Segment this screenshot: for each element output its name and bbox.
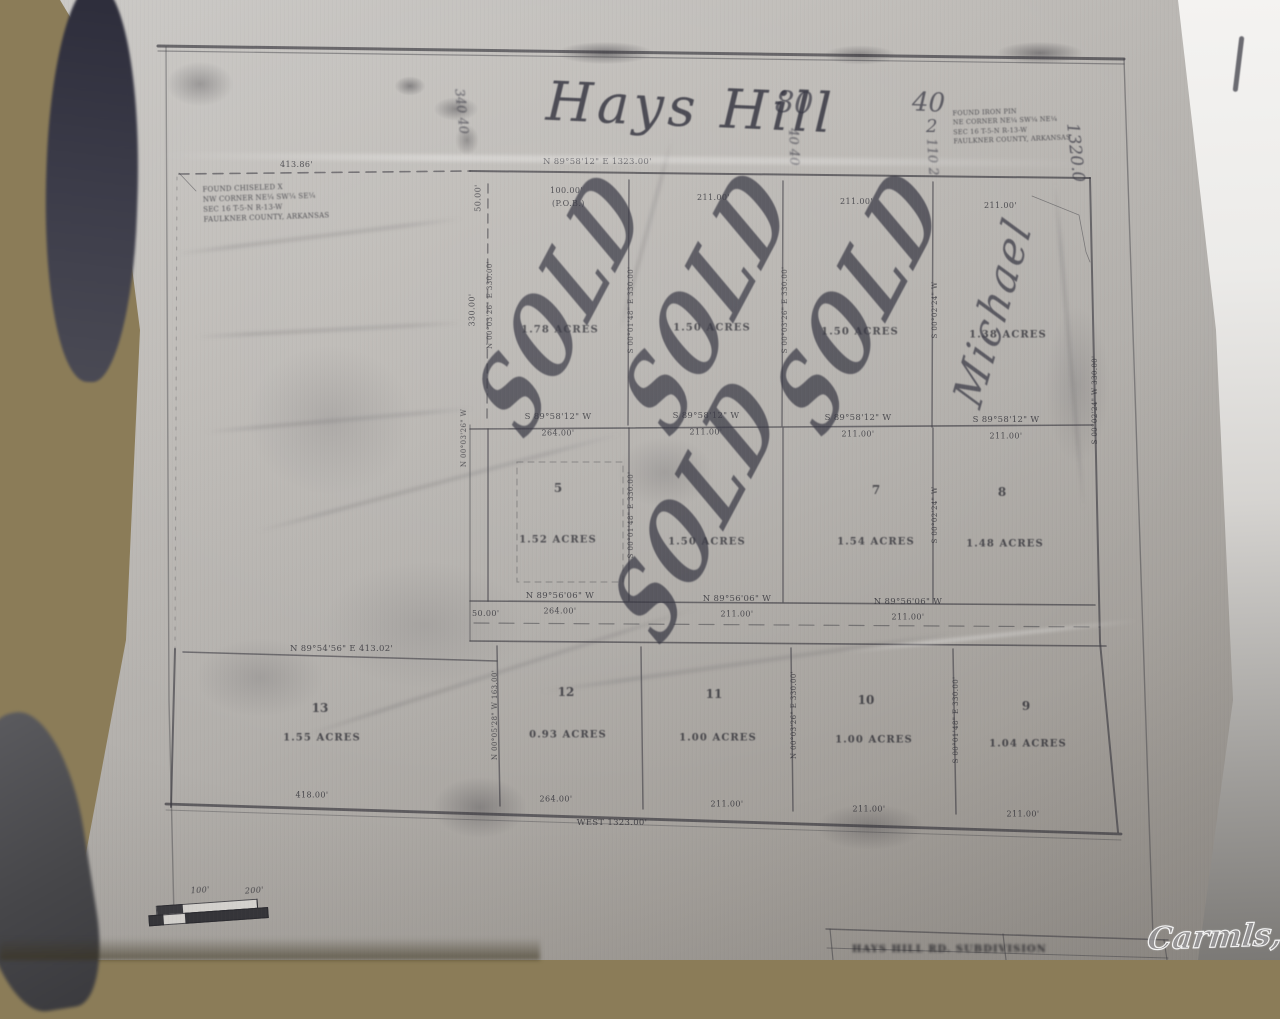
- dark-object-left-edge: [39, 0, 145, 383]
- watermark: Carmls, Inc: [1146, 915, 1280, 958]
- paper-texture: [0, 0, 1280, 960]
- paper-sheet: FOUND CHISELED X NW CORNER NE¼ SW¼ SE¼ S…: [0, 0, 1280, 960]
- photo-of-plat-map: FOUND CHISELED X NW CORNER NE¼ SW¼ SE¼ S…: [0, 0, 1280, 960]
- table-shadow: [0, 938, 540, 960]
